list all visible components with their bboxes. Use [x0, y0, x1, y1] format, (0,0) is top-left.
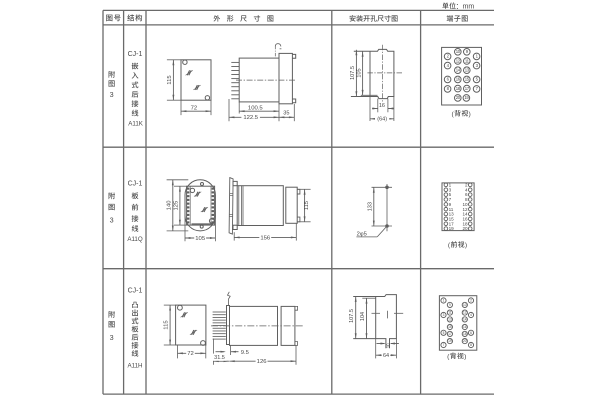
svg-text:72: 72	[191, 105, 198, 111]
svg-text:104: 104	[360, 312, 366, 321]
svg-text:107.5: 107.5	[350, 66, 356, 80]
svg-text:12: 12	[463, 311, 467, 315]
svg-text:17: 17	[448, 332, 452, 336]
svg-text:4: 4	[470, 313, 472, 317]
svg-text:15: 15	[448, 325, 452, 329]
svg-text:100.5: 100.5	[248, 106, 263, 112]
svg-text:20: 20	[462, 226, 468, 231]
svg-text:125: 125	[173, 200, 179, 211]
svg-text:6: 6	[470, 331, 472, 335]
svg-text:19: 19	[449, 226, 455, 231]
svg-text:10: 10	[463, 303, 467, 307]
svg-text:105: 105	[195, 236, 206, 242]
svg-text:122.5: 122.5	[243, 115, 258, 121]
svg-text:11: 11	[448, 311, 452, 315]
svg-text:CJ-1: CJ-1	[128, 288, 143, 295]
svg-text:126: 126	[257, 359, 268, 365]
svg-text:): )	[468, 111, 470, 118]
svg-text:2: 2	[470, 299, 472, 303]
svg-text:A11K: A11K	[128, 121, 144, 128]
svg-text:A11H: A11H	[127, 362, 142, 369]
svg-text:72: 72	[187, 351, 194, 357]
svg-text:3: 3	[443, 313, 445, 317]
svg-text:8: 8	[470, 343, 472, 347]
svg-text:14: 14	[463, 318, 467, 322]
svg-text:：mm: ：mm	[456, 3, 475, 10]
svg-text:3: 3	[110, 90, 114, 99]
svg-text:16: 16	[379, 103, 385, 109]
svg-text:31.5: 31.5	[214, 355, 225, 361]
svg-text:156: 156	[260, 235, 271, 241]
svg-text:18: 18	[463, 332, 467, 336]
svg-text:16: 16	[463, 325, 467, 329]
svg-text:115: 115	[167, 75, 173, 85]
svg-text:2φ5: 2φ5	[357, 231, 367, 237]
svg-text:1: 1	[443, 299, 445, 303]
svg-text:7: 7	[443, 343, 445, 347]
svg-text:(64): (64)	[377, 117, 387, 123]
svg-text:133: 133	[368, 202, 374, 211]
svg-text:115: 115	[304, 200, 310, 210]
svg-text:9: 9	[449, 303, 451, 307]
svg-text:A11Q: A11Q	[127, 236, 143, 243]
svg-text:35: 35	[283, 110, 289, 116]
svg-text:19: 19	[448, 339, 452, 343]
svg-text:3: 3	[110, 333, 114, 342]
svg-text:): )	[464, 353, 466, 360]
svg-text:5: 5	[443, 331, 445, 335]
svg-text:115: 115	[164, 320, 170, 330]
svg-text:13: 13	[448, 318, 452, 322]
svg-text:CJ-1: CJ-1	[128, 180, 143, 187]
svg-text:): )	[465, 242, 467, 249]
svg-text:9.5: 9.5	[241, 350, 249, 356]
svg-text:105: 105	[356, 68, 362, 77]
svg-text:10: 10	[385, 343, 390, 348]
svg-text:20: 20	[463, 339, 467, 343]
svg-text:64: 64	[383, 353, 389, 359]
svg-text:107.5: 107.5	[349, 309, 355, 323]
svg-text:3: 3	[110, 216, 114, 225]
svg-text:140: 140	[166, 200, 172, 211]
svg-text:CJ-1: CJ-1	[128, 51, 143, 58]
